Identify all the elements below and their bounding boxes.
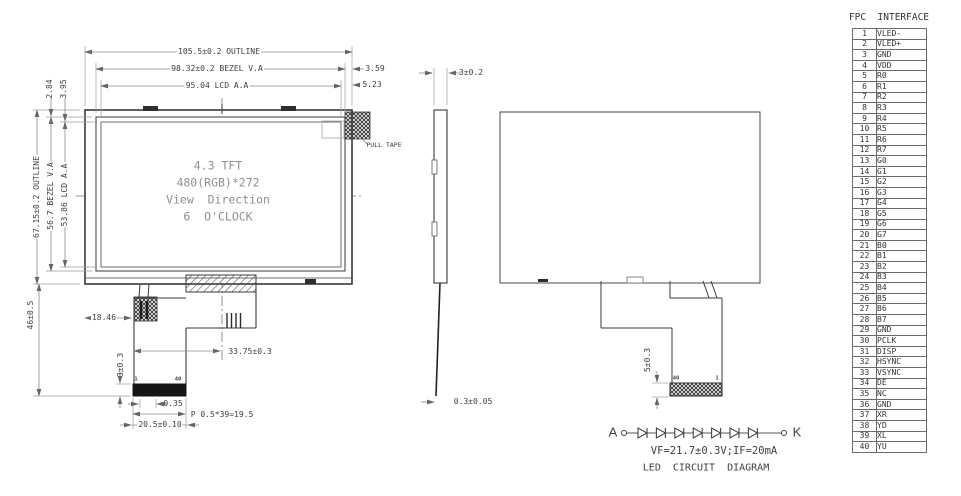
pin-number: 22	[853, 251, 877, 262]
fpc-pin-row: 31DISP	[853, 346, 927, 357]
pin-name: XL	[877, 431, 927, 442]
pin-name: VLED+	[877, 39, 927, 50]
pin-number: 24	[853, 272, 877, 283]
pin-number: 7	[853, 92, 877, 103]
pin-name: B6	[877, 304, 927, 315]
pin-name: HSYNC	[877, 357, 927, 368]
pin-name: G1	[877, 166, 927, 177]
fpc-pin-row: 13G0	[853, 156, 927, 167]
fpc-table-body: 1VLED-2VLED+3GND4VDD5R06R17R28R39R410R51…	[853, 29, 927, 453]
fpc-pin-row: 19G6	[853, 219, 927, 230]
pin-number: 31	[853, 346, 877, 357]
pin-number: 5	[853, 71, 877, 82]
rear-connector-pin40-label: 40	[673, 376, 680, 382]
dim-right-offset-lcd: 5.23	[361, 81, 382, 89]
pin-number: 23	[853, 262, 877, 273]
led-cathode-label: K	[793, 425, 802, 440]
fpc-pin-row: 27B6	[853, 304, 927, 315]
led-diagram-title: LED CIRCUIT DIAGRAM	[643, 463, 769, 474]
fpc-pin-row: 3GND	[853, 50, 927, 61]
rear-connector-pin1-label: 1	[715, 376, 718, 382]
side-view-drawing	[432, 110, 447, 396]
fpc-pin-row: 21B0	[853, 240, 927, 251]
dim-bezel-width: 98.32±0.2 BEZEL V.A	[170, 65, 264, 73]
pin-name: DISP	[877, 346, 927, 357]
pin-name: DE	[877, 378, 927, 389]
pin-name: B4	[877, 283, 927, 294]
pin-name: VLED-	[877, 29, 927, 40]
pin-number: 27	[853, 304, 877, 315]
pin-name: R4	[877, 113, 927, 124]
pin-number: 20	[853, 230, 877, 241]
pin-name: VDD	[877, 60, 927, 71]
fpc-interface-title: FPC INTERFACE	[846, 12, 932, 23]
pin-number: 14	[853, 166, 877, 177]
fpc-pin-row: 39XL	[853, 431, 927, 442]
pin-number: 26	[853, 293, 877, 304]
fpc-pin-row: 5R0	[853, 71, 927, 82]
pin-name: B2	[877, 262, 927, 273]
fpc-pin-row: 4VDD	[853, 60, 927, 71]
pin-number: 28	[853, 315, 877, 326]
dim-outline-width: 105.5±0.2 OUTLINE	[177, 48, 261, 56]
pin-name: G2	[877, 177, 927, 188]
datasheet-drawing: 105.5±0.2 OUTLINE 98.32±0.2 BEZEL V.A 95…	[0, 0, 961, 496]
pin-name: B7	[877, 315, 927, 326]
pin-number: 34	[853, 378, 877, 389]
pin-name: R2	[877, 92, 927, 103]
led-diodes	[638, 428, 757, 438]
fpc-pin-row: 34DE	[853, 378, 927, 389]
pin-number: 38	[853, 420, 877, 431]
dim-fpc-offset: 18.46	[91, 314, 117, 322]
pin-number: 17	[853, 198, 877, 209]
pin-name: VSYNC	[877, 368, 927, 379]
fpc-pin-row: 37XR	[853, 410, 927, 421]
screen-view-direction-label: View Direction	[166, 194, 270, 206]
pin-number: 35	[853, 389, 877, 400]
pin-number: 10	[853, 124, 877, 135]
screen-clock-label: 6 O'CLOCK	[183, 211, 252, 223]
dim-left-offset-lcd: 3.95	[60, 78, 68, 99]
dim-module-thickness: 3±0.2	[458, 69, 484, 77]
fpc-pin-row: 36GND	[853, 399, 927, 410]
pin-number: 33	[853, 368, 877, 379]
fpc-pin-row: 29GND	[853, 325, 927, 336]
dim-lcd-width: 95.04 LCD A.A	[185, 82, 250, 90]
pin-name: R1	[877, 81, 927, 92]
pin-number: 18	[853, 209, 877, 220]
fpc-pin-row: 26B5	[853, 293, 927, 304]
fpc-pin-row: 15G2	[853, 177, 927, 188]
fpc-pin-row: 30PCLK	[853, 336, 927, 347]
pin-name: G7	[877, 230, 927, 241]
led-circuit-drawing	[622, 428, 787, 438]
dim-pin-margin: 0.35	[162, 400, 183, 408]
fpc-pin-row: 17G4	[853, 198, 927, 209]
dim-outline-height: 67.15±0.2 OUTLINE	[33, 155, 41, 239]
pin-number: 36	[853, 399, 877, 410]
pin-name: GND	[877, 399, 927, 410]
dim-pin-pitch: P 0.5*39=19.5	[190, 411, 255, 419]
dim-rear-fpc-tail: 5±0.3	[644, 347, 652, 373]
pull-tape-label: PULL TAPE	[365, 142, 402, 149]
pin-number: 12	[853, 145, 877, 156]
fpc-pin-row: 10R5	[853, 124, 927, 135]
dim-bezel-height: 56.7 BEZEL V.A	[47, 161, 55, 230]
front-connector-pin1-label: 1	[134, 377, 137, 383]
fpc-pin-row: 24B3	[853, 272, 927, 283]
led-diode-symbol	[712, 428, 721, 438]
pin-number: 6	[853, 81, 877, 92]
pin-name: PCLK	[877, 336, 927, 347]
dim-connector-width: 20.5±0.10	[137, 421, 182, 429]
pin-number: 9	[853, 113, 877, 124]
dim-right-offset-bezel: 3.59	[364, 65, 385, 73]
led-diode-symbol	[730, 428, 739, 438]
pin-number: 37	[853, 410, 877, 421]
fpc-pin-row: 25B4	[853, 283, 927, 294]
fpc-pin-row: 7R2	[853, 92, 927, 103]
fpc-pin-row: 35NC	[853, 389, 927, 400]
pin-name: R0	[877, 71, 927, 82]
fpc-pin-table: 1VLED-2VLED+3GND4VDD5R06R17R28R39R410R51…	[852, 28, 927, 453]
pin-number: 2	[853, 39, 877, 50]
fpc-interface-panel: FPC INTERFACE 1VLED-2VLED+3GND4VDD5R06R1…	[846, 12, 932, 453]
screen-size-label: 4.3 TFT	[194, 160, 242, 172]
pin-number: 25	[853, 283, 877, 294]
screen-resolution-label: 480(RGB)*272	[176, 177, 259, 189]
pin-number: 39	[853, 431, 877, 442]
led-diode-symbol	[656, 428, 665, 438]
fpc-pin-row: 9R4	[853, 113, 927, 124]
pin-name: G0	[877, 156, 927, 167]
fpc-pin-row: 23B2	[853, 262, 927, 273]
pin-number: 13	[853, 156, 877, 167]
pin-number: 21	[853, 240, 877, 251]
fpc-pin-row: 2VLED+	[853, 39, 927, 50]
rear-view-drawing	[500, 112, 760, 396]
pin-number: 4	[853, 60, 877, 71]
pin-number: 40	[853, 442, 877, 453]
dim-left-offset-bezel: 2.84	[46, 78, 54, 99]
led-diode-symbol	[693, 428, 702, 438]
pin-name: GND	[877, 325, 927, 336]
fpc-pin-row: 33VSYNC	[853, 368, 927, 379]
fpc-pin-row: 16G3	[853, 187, 927, 198]
led-diode-symbol	[675, 428, 684, 438]
fpc-pin-row: 38YD	[853, 420, 927, 431]
pin-name: GND	[877, 50, 927, 61]
fpc-pin-row: 22B1	[853, 251, 927, 262]
fpc-pin-row: 28B7	[853, 315, 927, 326]
fpc-pin-row: 8R3	[853, 103, 927, 114]
pin-number: 11	[853, 134, 877, 145]
led-spec-label: VF=21.7±0.3V;IF=20mA	[651, 445, 777, 457]
pin-number: 3	[853, 50, 877, 61]
fpc-pin-row: 11R6	[853, 134, 927, 145]
pin-number: 19	[853, 219, 877, 230]
fpc-pin-row: 20G7	[853, 230, 927, 241]
pin-name: YD	[877, 420, 927, 431]
pin-number: 32	[853, 357, 877, 368]
led-diode-symbol	[638, 428, 647, 438]
fpc-pin-row: 14G1	[853, 166, 927, 177]
fpc-pin-row: 1VLED-	[853, 29, 927, 40]
fpc-pin-row: 12R7	[853, 145, 927, 156]
pin-name: B3	[877, 272, 927, 283]
front-connector-pin40-label: 40	[175, 377, 182, 383]
pin-name: XR	[877, 410, 927, 421]
pin-name: R6	[877, 134, 927, 145]
fpc-pin-row: 18G5	[853, 209, 927, 220]
pin-name: B0	[877, 240, 927, 251]
led-anode-label: A	[609, 425, 618, 440]
pin-number: 15	[853, 177, 877, 188]
dim-connector-thickness: 3±0.3	[117, 352, 125, 378]
pin-name: R5	[877, 124, 927, 135]
fpc-pin-row: 6R1	[853, 81, 927, 92]
pin-name: B5	[877, 293, 927, 304]
pin-number: 29	[853, 325, 877, 336]
pin-name: G3	[877, 187, 927, 198]
pin-name: B1	[877, 251, 927, 262]
pin-name: G4	[877, 198, 927, 209]
pin-number: 30	[853, 336, 877, 347]
dim-lcd-height: 53.86 LCD A.A	[61, 163, 69, 228]
pin-number: 1	[853, 29, 877, 40]
pin-name: YU	[877, 442, 927, 453]
pin-name: G5	[877, 209, 927, 220]
dim-fpc-thickness: 0.3±0.05	[453, 398, 494, 406]
pin-number: 8	[853, 103, 877, 114]
led-diode-symbol	[748, 428, 757, 438]
dim-fpc-drop: 46±0.5	[27, 300, 35, 331]
pin-name: R3	[877, 103, 927, 114]
fpc-pin-row: 40YU	[853, 442, 927, 453]
pin-name: G6	[877, 219, 927, 230]
fpc-pin-row: 32HSYNC	[853, 357, 927, 368]
pin-number: 16	[853, 187, 877, 198]
pin-name: NC	[877, 389, 927, 400]
dim-fpc-center: 33.75±0.3	[227, 348, 272, 356]
pin-name: R7	[877, 145, 927, 156]
